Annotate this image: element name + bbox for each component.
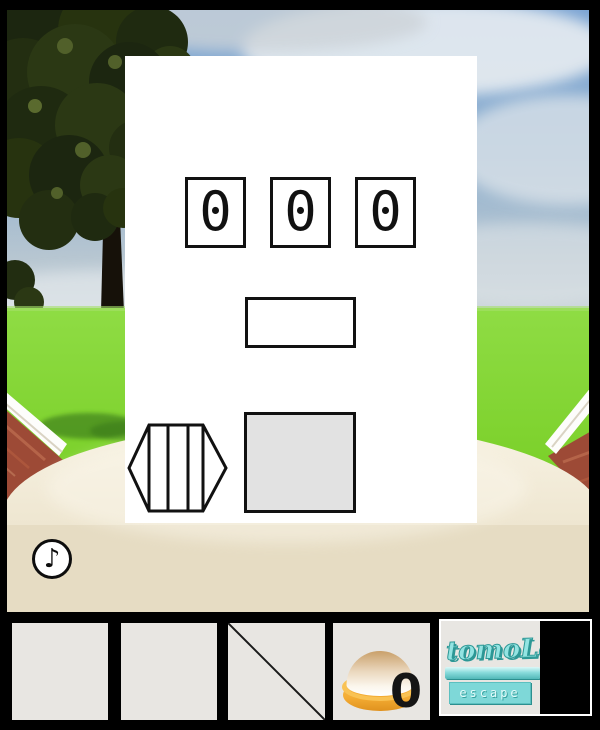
code-digit-3[interactable]: 0 <box>355 177 416 248</box>
gray-square-button[interactable] <box>244 412 356 513</box>
striped-hexagon-icon[interactable] <box>127 423 228 513</box>
white-door-panel[interactable]: 0 0 0 <box>125 56 477 523</box>
inventory-slot-3[interactable] <box>228 623 325 720</box>
tomola-logo: tomoLa escape <box>441 621 540 714</box>
code-digit-1[interactable]: 0 <box>185 177 246 248</box>
inventory-slot-4[interactable]: 0 <box>333 623 430 720</box>
game-screen: 0 0 0 ♪ <box>0 0 600 730</box>
logo-frame[interactable]: tomoLa escape <box>439 619 592 716</box>
music-toggle-button[interactable]: ♪ <box>32 539 72 579</box>
inventory-slot-2[interactable] <box>121 623 217 720</box>
inventory-slot-1[interactable] <box>12 623 108 720</box>
logo-bar <box>445 667 540 679</box>
logo-title-text: tomoLa <box>446 633 540 667</box>
item-count: 0 <box>390 668 422 714</box>
logo-subtitle-text: escape <box>449 682 531 704</box>
key-slot-rect[interactable] <box>245 297 356 348</box>
music-note-icon: ♪ <box>44 544 61 574</box>
stick-item-icon <box>228 623 325 720</box>
code-digit-2[interactable]: 0 <box>270 177 331 248</box>
